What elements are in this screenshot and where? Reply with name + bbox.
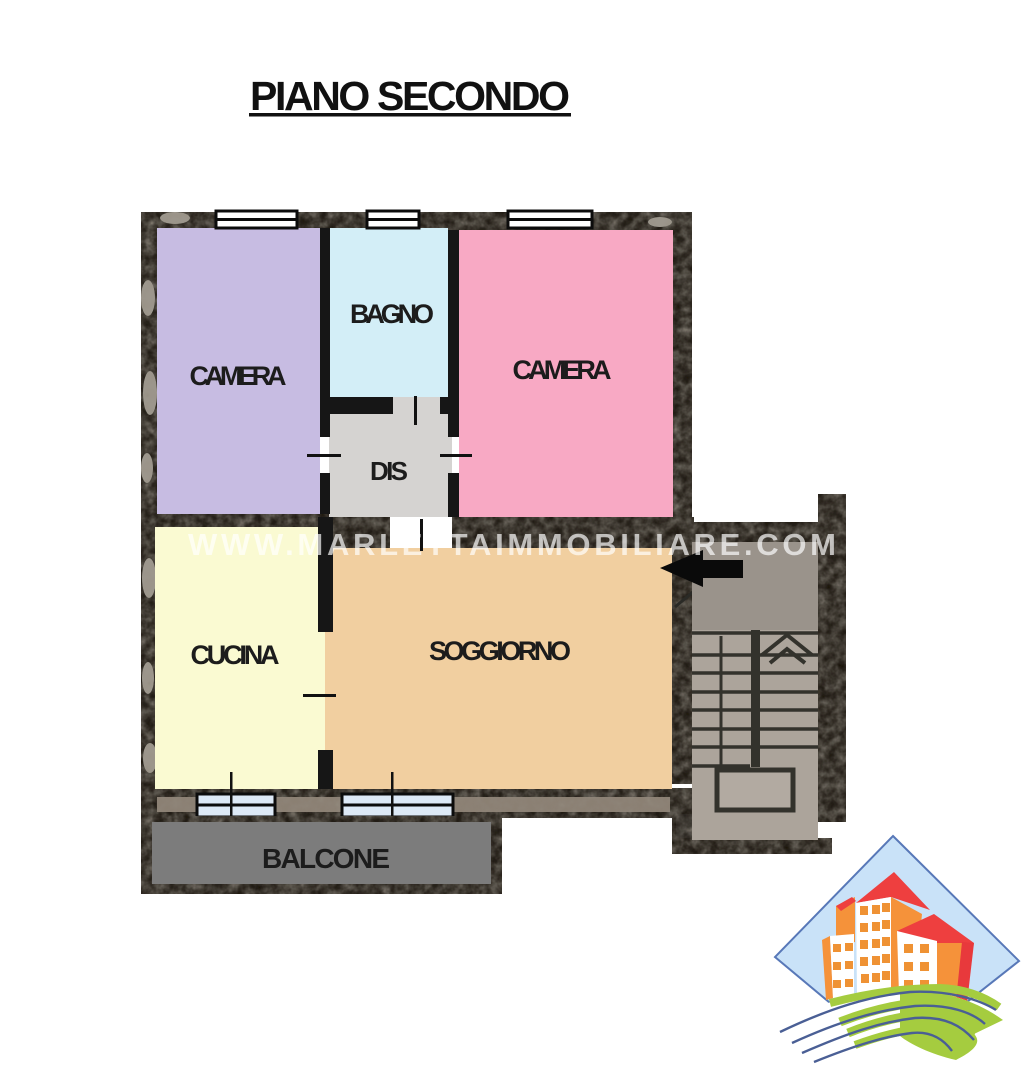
svg-text:CAMERA: CAMERA (513, 355, 612, 385)
svg-text:DIS: DIS (370, 456, 408, 486)
svg-text:SOGGIORNO: SOGGIORNO (429, 636, 571, 666)
svg-text:CUCINA: CUCINA (191, 640, 280, 670)
svg-text:BAGNO: BAGNO (350, 299, 434, 329)
svg-text:BALCONE: BALCONE (262, 843, 390, 874)
svg-text:WWW.MARLETTAIMMOBILIARE.COM: WWW.MARLETTAIMMOBILIARE.COM (188, 527, 836, 562)
svg-text:PIANO SECONDO: PIANO SECONDO (250, 73, 570, 119)
svg-text:CAMERA: CAMERA (190, 361, 287, 391)
